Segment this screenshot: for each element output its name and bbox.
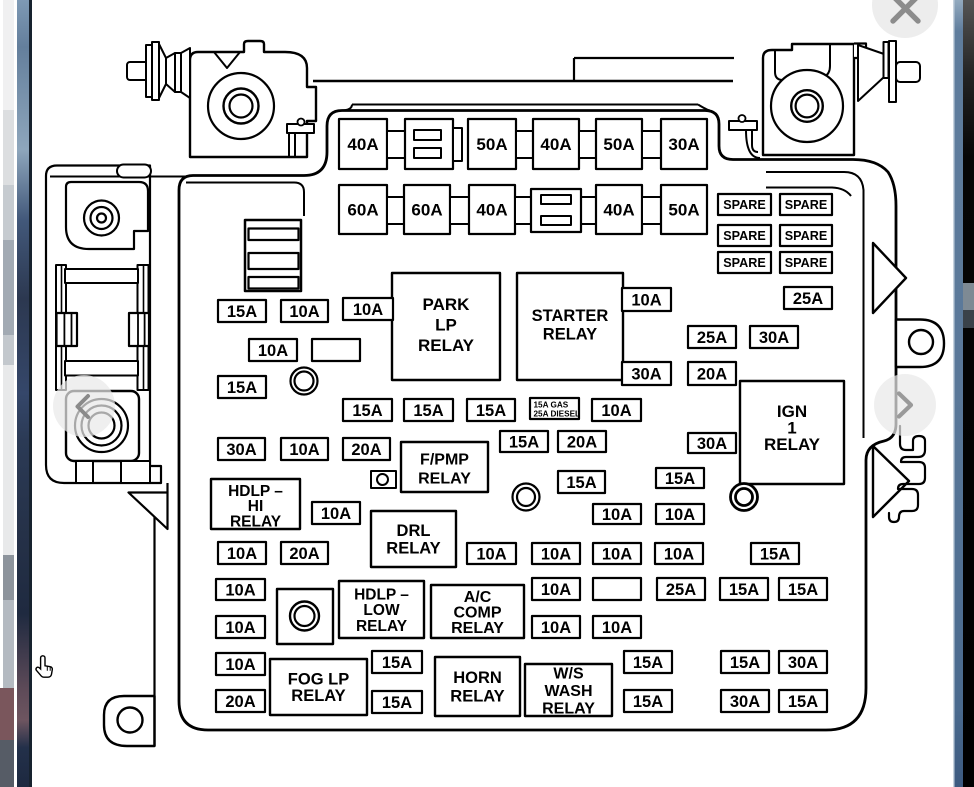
svg-text:15A: 15A bbox=[760, 545, 790, 563]
svg-text:25A: 25A bbox=[793, 290, 823, 308]
svg-text:25A DIESEL: 25A DIESEL bbox=[534, 409, 581, 418]
svg-text:15A: 15A bbox=[413, 402, 443, 420]
svg-text:15A: 15A bbox=[633, 654, 663, 672]
svg-text:60A: 60A bbox=[411, 201, 442, 220]
svg-text:SPARE: SPARE bbox=[785, 256, 827, 270]
svg-text:10A: 10A bbox=[225, 656, 255, 674]
svg-text:10A: 10A bbox=[541, 619, 571, 637]
svg-text:15A: 15A bbox=[476, 402, 506, 420]
svg-text:20A: 20A bbox=[567, 433, 597, 451]
svg-text:50A: 50A bbox=[603, 135, 634, 154]
svg-text:PARK: PARK bbox=[423, 295, 471, 314]
svg-text:F/PMP: F/PMP bbox=[420, 451, 469, 468]
svg-text:10A: 10A bbox=[225, 581, 255, 599]
svg-text:HORN: HORN bbox=[453, 669, 502, 687]
svg-text:STARTER: STARTER bbox=[532, 307, 609, 325]
svg-text:SPARE: SPARE bbox=[785, 198, 827, 212]
svg-text:10A: 10A bbox=[665, 506, 695, 524]
svg-text:15A: 15A bbox=[566, 474, 596, 492]
svg-text:HDLP –: HDLP – bbox=[354, 586, 409, 603]
svg-text:10A: 10A bbox=[602, 506, 632, 524]
svg-text:RELAY: RELAY bbox=[356, 618, 408, 635]
svg-text:DRL: DRL bbox=[397, 522, 431, 540]
svg-text:15A: 15A bbox=[382, 694, 412, 712]
svg-text:RELAY: RELAY bbox=[764, 435, 821, 454]
svg-text:RELAY: RELAY bbox=[386, 540, 440, 558]
svg-text:10A: 10A bbox=[289, 441, 319, 459]
svg-text:30A: 30A bbox=[788, 654, 818, 672]
svg-text:15A: 15A bbox=[382, 654, 412, 672]
svg-text:25A: 25A bbox=[697, 329, 727, 347]
svg-text:10A: 10A bbox=[258, 342, 288, 360]
svg-text:25A: 25A bbox=[666, 581, 696, 599]
svg-text:WASH: WASH bbox=[545, 683, 593, 700]
svg-text:10A: 10A bbox=[321, 505, 351, 523]
svg-text:15A: 15A bbox=[665, 470, 695, 488]
svg-text:RELAY: RELAY bbox=[542, 700, 595, 717]
svg-text:10A: 10A bbox=[631, 291, 661, 309]
svg-text:40A: 40A bbox=[347, 135, 378, 154]
svg-text:10A: 10A bbox=[664, 545, 694, 563]
svg-text:30A: 30A bbox=[631, 365, 661, 383]
svg-text:RELAY: RELAY bbox=[418, 336, 475, 355]
svg-text:10A: 10A bbox=[353, 301, 383, 319]
svg-text:30A: 30A bbox=[668, 135, 699, 154]
svg-text:SPARE: SPARE bbox=[723, 229, 765, 243]
svg-text:50A: 50A bbox=[668, 201, 699, 220]
svg-text:20A: 20A bbox=[697, 365, 727, 383]
svg-text:RELAY: RELAY bbox=[451, 620, 504, 637]
svg-text:15A: 15A bbox=[730, 654, 760, 672]
svg-text:10A: 10A bbox=[541, 545, 571, 563]
svg-text:RELAY: RELAY bbox=[291, 687, 345, 705]
svg-text:A/C: A/C bbox=[464, 589, 492, 606]
svg-text:10A: 10A bbox=[476, 545, 506, 563]
svg-text:15A: 15A bbox=[729, 581, 759, 599]
svg-text:40A: 40A bbox=[540, 135, 571, 154]
svg-text:SPARE: SPARE bbox=[785, 229, 827, 243]
svg-text:30A: 30A bbox=[759, 329, 789, 347]
svg-text:15A: 15A bbox=[788, 581, 818, 599]
svg-text:FOG LP: FOG LP bbox=[288, 671, 349, 689]
svg-text:20A: 20A bbox=[225, 693, 255, 711]
svg-text:15A: 15A bbox=[352, 402, 382, 420]
svg-text:RELAY: RELAY bbox=[230, 513, 282, 530]
svg-text:LP: LP bbox=[435, 316, 457, 335]
svg-text:50A: 50A bbox=[476, 135, 507, 154]
svg-text:RELAY: RELAY bbox=[450, 688, 504, 706]
svg-text:30A: 30A bbox=[697, 435, 727, 453]
svg-text:RELAY: RELAY bbox=[543, 326, 597, 344]
svg-text:15A GAS: 15A GAS bbox=[534, 401, 569, 410]
svg-text:W/S: W/S bbox=[553, 665, 584, 682]
svg-text:10A: 10A bbox=[289, 303, 319, 321]
svg-text:10A: 10A bbox=[602, 619, 632, 637]
svg-text:10A: 10A bbox=[541, 581, 571, 599]
svg-text:RELAY: RELAY bbox=[418, 470, 471, 487]
svg-text:SPARE: SPARE bbox=[723, 256, 765, 270]
svg-text:30A: 30A bbox=[730, 693, 760, 711]
svg-text:15A: 15A bbox=[227, 379, 257, 397]
svg-text:20A: 20A bbox=[351, 441, 381, 459]
svg-text:10A: 10A bbox=[602, 545, 632, 563]
svg-text:SPARE: SPARE bbox=[723, 198, 765, 212]
svg-text:40A: 40A bbox=[476, 201, 507, 220]
svg-text:15A: 15A bbox=[633, 693, 663, 711]
svg-text:10A: 10A bbox=[225, 619, 255, 637]
svg-text:15A: 15A bbox=[788, 693, 818, 711]
svg-text:20A: 20A bbox=[289, 545, 319, 563]
svg-text:15A: 15A bbox=[509, 433, 539, 451]
svg-text:COMP: COMP bbox=[454, 604, 502, 621]
svg-text:10A: 10A bbox=[227, 545, 257, 563]
svg-text:30A: 30A bbox=[226, 441, 256, 459]
svg-text:LOW: LOW bbox=[363, 602, 400, 619]
svg-text:60A: 60A bbox=[347, 201, 378, 220]
svg-text:10A: 10A bbox=[601, 402, 631, 420]
svg-text:15A: 15A bbox=[227, 303, 257, 321]
svg-text:40A: 40A bbox=[603, 201, 634, 220]
